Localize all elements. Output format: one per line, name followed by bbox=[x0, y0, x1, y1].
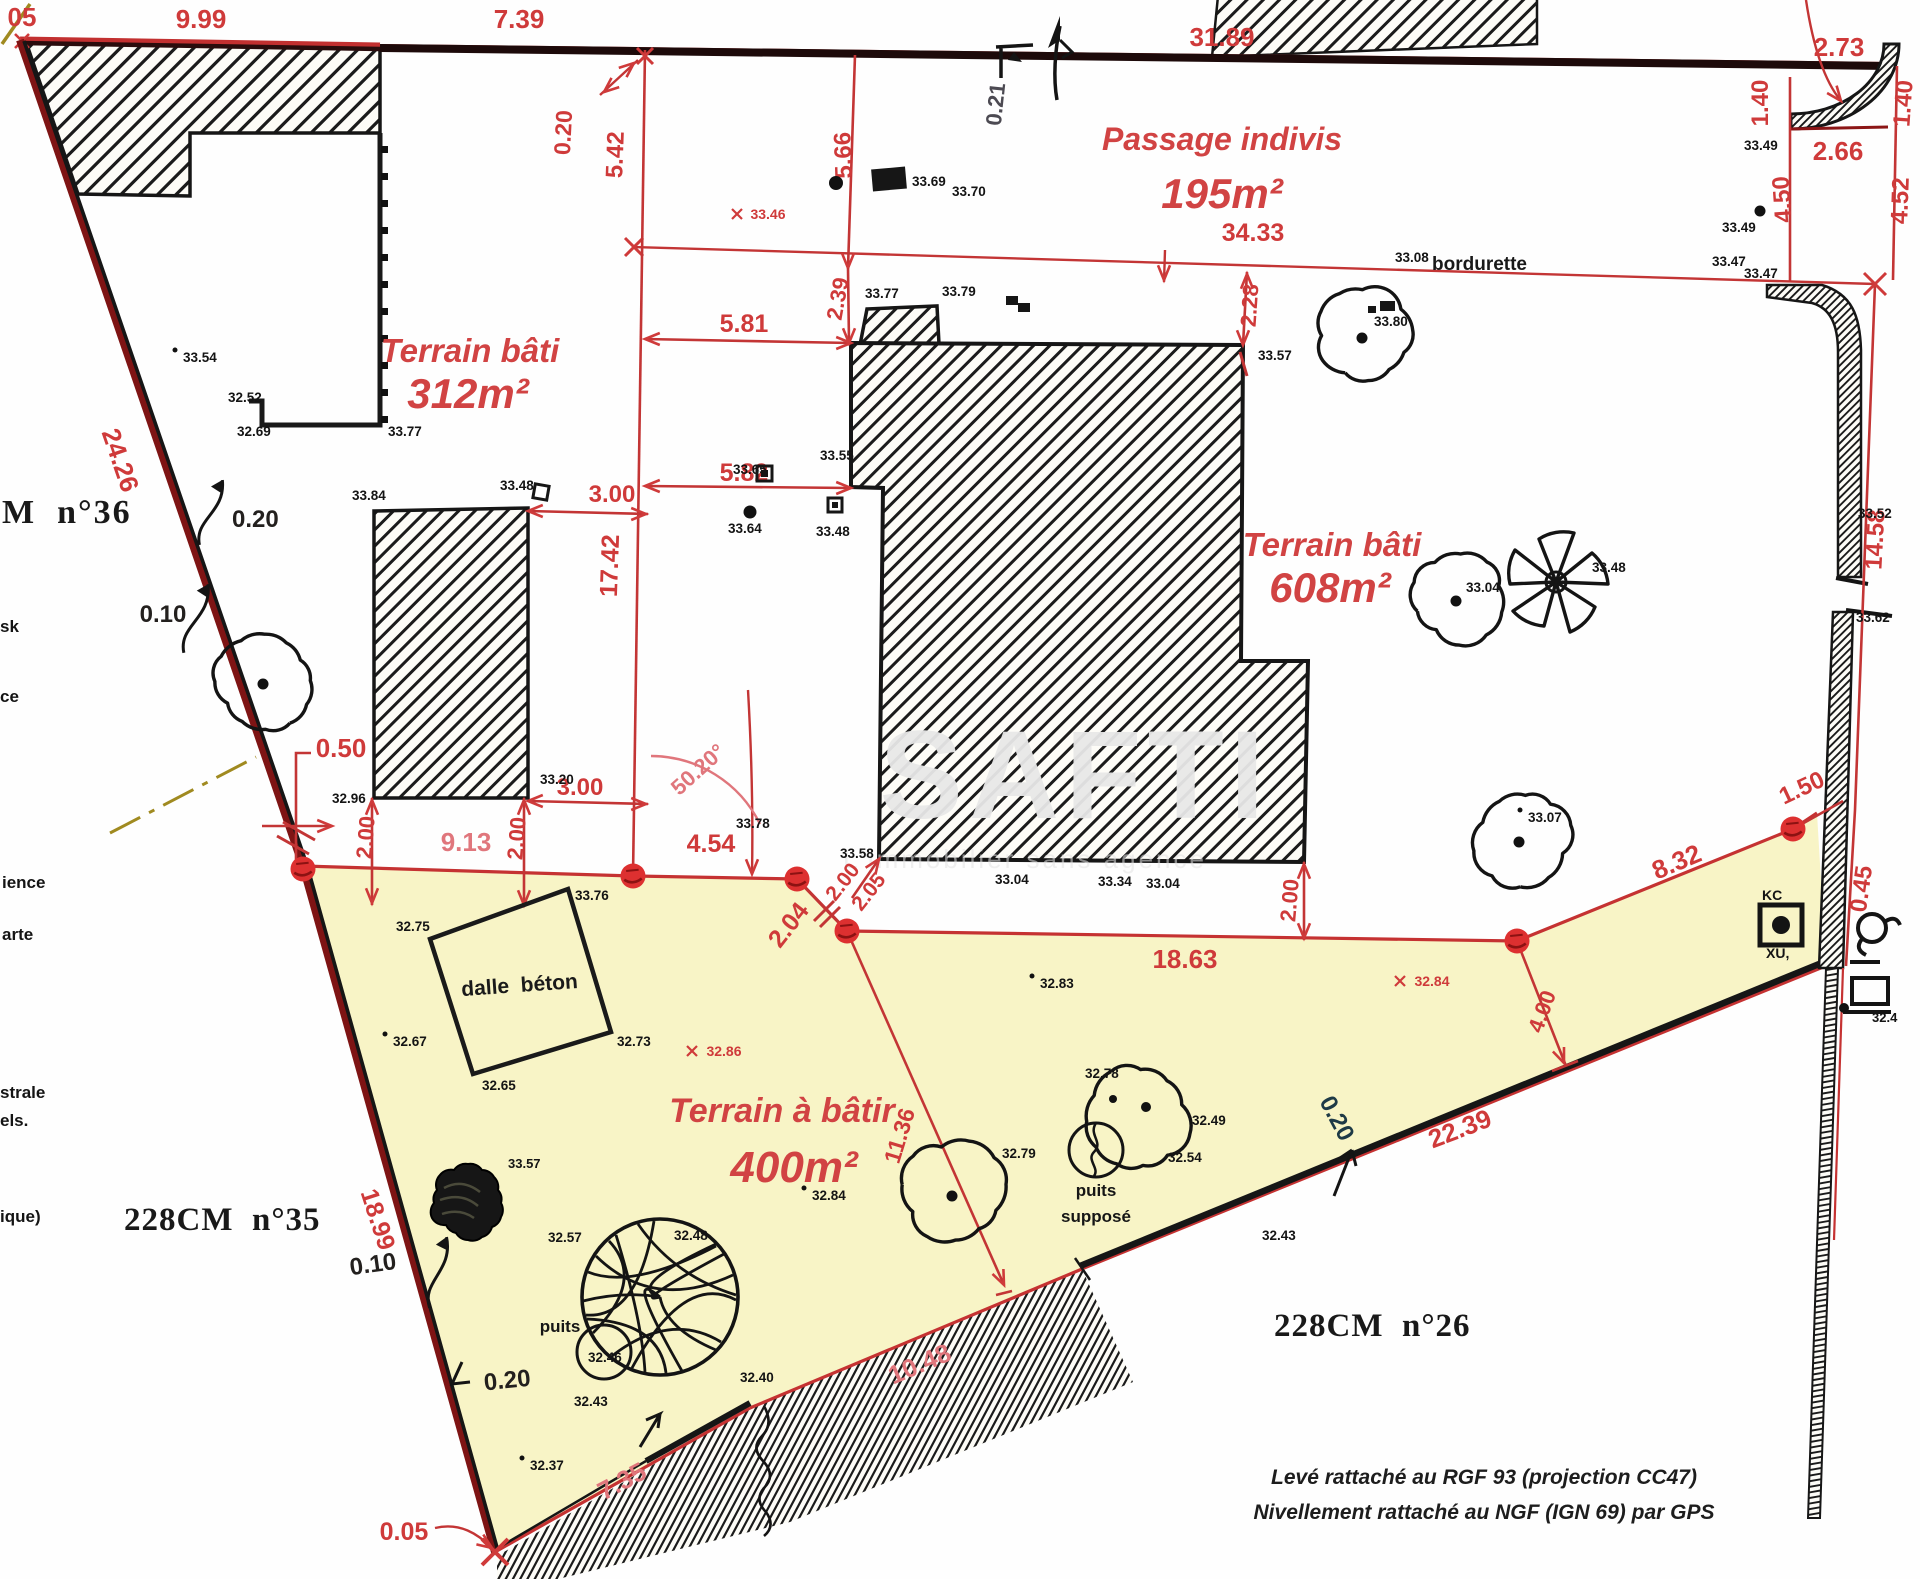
svg-text:7.39: 7.39 bbox=[494, 4, 545, 34]
svg-text:33.58: 33.58 bbox=[840, 846, 874, 861]
svg-text:33.04: 33.04 bbox=[1466, 580, 1500, 595]
svg-text:4.50: 4.50 bbox=[1767, 175, 1797, 223]
svg-text:33.48: 33.48 bbox=[500, 478, 534, 493]
svg-text:32.86: 32.86 bbox=[706, 1043, 741, 1059]
svg-text:0.10: 0.10 bbox=[140, 601, 187, 628]
svg-text:32.69: 32.69 bbox=[237, 424, 271, 439]
svg-text:2.66: 2.66 bbox=[1813, 136, 1864, 166]
svg-text:33.57: 33.57 bbox=[508, 1156, 541, 1171]
svg-text:9.99: 9.99 bbox=[176, 4, 227, 34]
svg-text:3.00: 3.00 bbox=[589, 481, 636, 508]
svg-text:32.84: 32.84 bbox=[1414, 973, 1449, 989]
svg-text:4.54: 4.54 bbox=[687, 830, 736, 858]
svg-text:33.49: 33.49 bbox=[1744, 138, 1778, 153]
svg-text:32.49: 32.49 bbox=[1192, 1113, 1226, 1128]
svg-text:1.40: 1.40 bbox=[1888, 79, 1918, 127]
svg-text:SAFTI: SAFTI bbox=[879, 706, 1270, 845]
svg-text:5.66: 5.66 bbox=[829, 131, 858, 179]
svg-text:M n°36: M n°36 bbox=[2, 494, 132, 531]
svg-text:puits: puits bbox=[540, 1317, 581, 1336]
svg-text:33.77: 33.77 bbox=[388, 424, 422, 439]
svg-text:195m²: 195m² bbox=[1161, 170, 1283, 217]
svg-text:608m²: 608m² bbox=[1269, 564, 1391, 611]
svg-text:Terrain à bâtir: Terrain à bâtir bbox=[669, 1092, 896, 1130]
svg-text:33.55: 33.55 bbox=[820, 448, 854, 463]
svg-text:33.54: 33.54 bbox=[183, 350, 217, 365]
svg-text:32.43: 32.43 bbox=[574, 1394, 608, 1409]
svg-text:32.43: 32.43 bbox=[1262, 1228, 1296, 1243]
svg-text:32.67: 32.67 bbox=[393, 1034, 427, 1049]
svg-text:33.04: 33.04 bbox=[995, 872, 1029, 887]
svg-text:KC: KC bbox=[1762, 887, 1782, 903]
svg-text:33.84: 33.84 bbox=[352, 488, 386, 503]
svg-text:32.37: 32.37 bbox=[530, 1458, 564, 1473]
svg-text:Levé rattaché au RGF 93 (proje: Levé rattaché au RGF 93 (projection CC47… bbox=[1271, 1466, 1697, 1489]
svg-text:32.73: 32.73 bbox=[617, 1034, 651, 1049]
svg-text:33.80: 33.80 bbox=[1374, 314, 1408, 329]
svg-text:els.: els. bbox=[0, 1111, 28, 1130]
svg-text:XU,: XU, bbox=[1766, 945, 1789, 961]
svg-text:33.07: 33.07 bbox=[1528, 810, 1562, 825]
svg-text:33.48: 33.48 bbox=[1592, 560, 1626, 575]
svg-text:ience: ience bbox=[2, 873, 45, 892]
svg-text:2.28: 2.28 bbox=[1236, 283, 1264, 327]
svg-text:33.78: 33.78 bbox=[736, 816, 770, 831]
svg-text:33.46: 33.46 bbox=[750, 206, 785, 222]
svg-text:9.13: 9.13 bbox=[441, 827, 492, 857]
svg-text:5.42: 5.42 bbox=[601, 131, 630, 179]
svg-text:sk: sk bbox=[0, 617, 19, 636]
svg-text:33.08: 33.08 bbox=[1395, 250, 1429, 265]
svg-text:0.20: 0.20 bbox=[232, 506, 279, 533]
svg-text:34.33: 34.33 bbox=[1222, 219, 1285, 247]
svg-text:5.81: 5.81 bbox=[720, 310, 769, 338]
svg-text:32.65: 32.65 bbox=[482, 1078, 516, 1093]
svg-text:puits: puits bbox=[1076, 1181, 1117, 1200]
svg-text:supposé: supposé bbox=[1061, 1207, 1131, 1226]
svg-text:33.47: 33.47 bbox=[1712, 254, 1746, 269]
svg-text:32.54: 32.54 bbox=[1168, 1150, 1202, 1165]
svg-text:33.52: 33.52 bbox=[1858, 506, 1892, 521]
svg-text:2.00: 2.00 bbox=[351, 815, 380, 860]
svg-text:33.76: 33.76 bbox=[575, 888, 609, 903]
svg-text:33.34: 33.34 bbox=[1098, 874, 1132, 889]
svg-text:18.63: 18.63 bbox=[1152, 944, 1217, 974]
svg-text:ce: ce bbox=[0, 687, 19, 706]
svg-text:33.79: 33.79 bbox=[942, 284, 976, 299]
svg-text:32.79: 32.79 bbox=[1002, 1146, 1036, 1161]
svg-text:32.83: 32.83 bbox=[1040, 976, 1074, 991]
svg-text:2.73: 2.73 bbox=[1814, 32, 1865, 62]
svg-text:228CM n°26: 228CM n°26 bbox=[1274, 1308, 1471, 1344]
svg-text:Terrain bâti: Terrain bâti bbox=[1243, 526, 1422, 563]
svg-text:400m²: 400m² bbox=[729, 1143, 859, 1192]
svg-text:31.89: 31.89 bbox=[1189, 22, 1254, 52]
svg-text:strale: strale bbox=[0, 1083, 45, 1102]
svg-text:17.42: 17.42 bbox=[595, 534, 625, 598]
svg-text:32.78: 32.78 bbox=[1085, 1066, 1119, 1081]
svg-text:33.70: 33.70 bbox=[952, 184, 986, 199]
svg-text:L’immobilier sans agence: L’immobilier sans agence bbox=[843, 844, 1207, 874]
svg-text:312m²: 312m² bbox=[407, 370, 529, 417]
svg-text:32.4: 32.4 bbox=[1872, 1010, 1898, 1025]
svg-text:33.04: 33.04 bbox=[1146, 876, 1180, 891]
svg-text:33.48: 33.48 bbox=[816, 524, 850, 539]
svg-text:2.00: 2.00 bbox=[502, 816, 531, 861]
svg-text:arte: arte bbox=[2, 925, 33, 944]
svg-text:bordurette: bordurette bbox=[1432, 254, 1527, 275]
svg-text:32.84: 32.84 bbox=[812, 1188, 846, 1203]
svg-text:32.75: 32.75 bbox=[396, 919, 430, 934]
svg-text:32.46: 32.46 bbox=[588, 1350, 622, 1365]
svg-text:32.96: 32.96 bbox=[332, 791, 366, 806]
svg-text:32.40: 32.40 bbox=[740, 1370, 774, 1385]
svg-text:ique): ique) bbox=[0, 1207, 41, 1226]
svg-text:Nivellement rattaché au NGF (I: Nivellement rattaché au NGF (IGN 69) par… bbox=[1254, 1501, 1715, 1524]
svg-text:33.77: 33.77 bbox=[865, 286, 899, 301]
svg-text:0.05: 0.05 bbox=[380, 1518, 429, 1546]
svg-text:Passage indivis: Passage indivis bbox=[1102, 121, 1342, 157]
svg-text:33.47: 33.47 bbox=[1744, 266, 1778, 281]
svg-text:2.00: 2.00 bbox=[1275, 878, 1304, 923]
svg-text:33.62: 33.62 bbox=[1856, 610, 1890, 625]
svg-text:0.50: 0.50 bbox=[316, 733, 367, 763]
svg-text:228CM n°35: 228CM n°35 bbox=[124, 1202, 321, 1238]
svg-text:4.52: 4.52 bbox=[1886, 177, 1915, 225]
svg-text:32.48: 32.48 bbox=[674, 1228, 708, 1243]
svg-text:33.20: 33.20 bbox=[540, 772, 574, 787]
svg-text:33.49: 33.49 bbox=[1722, 220, 1756, 235]
svg-text:Terrain bâti: Terrain bâti bbox=[381, 332, 560, 369]
svg-text:33.64: 33.64 bbox=[728, 521, 762, 536]
svg-text:32.52: 32.52 bbox=[228, 390, 262, 405]
svg-text:0.20: 0.20 bbox=[483, 1365, 532, 1397]
svg-text:33.57: 33.57 bbox=[1258, 348, 1292, 363]
svg-text:0.20: 0.20 bbox=[549, 110, 577, 156]
svg-text:1.40: 1.40 bbox=[1747, 80, 1774, 127]
svg-text:32.57: 32.57 bbox=[548, 1230, 582, 1245]
svg-text:33.69: 33.69 bbox=[912, 174, 946, 189]
svg-text:0.21: 0.21 bbox=[981, 82, 1010, 127]
svg-text:05: 05 bbox=[8, 2, 37, 32]
